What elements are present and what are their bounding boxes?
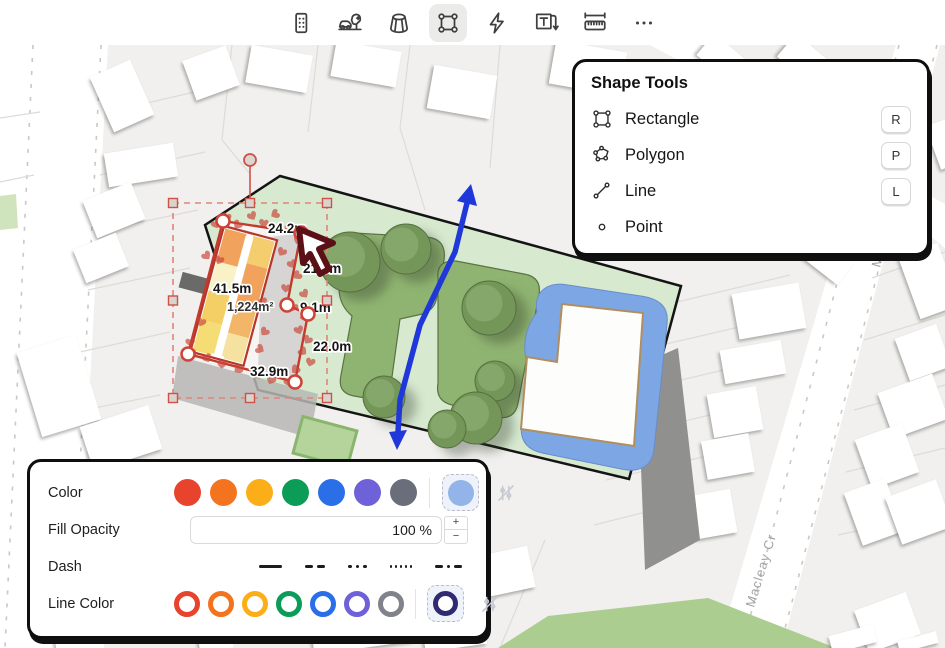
line-color-row: Line Color bbox=[48, 585, 468, 622]
area-label: 1,224m² bbox=[227, 300, 274, 314]
shortcut-key: R bbox=[881, 106, 911, 133]
dash-label: Dash bbox=[48, 559, 156, 575]
car-tree-tool-button[interactable] bbox=[331, 4, 369, 42]
measurement-bottom: 32.9m bbox=[250, 364, 288, 379]
line-color-swatch[interactable] bbox=[310, 591, 336, 617]
custom-color-disabled-icon bbox=[496, 483, 516, 503]
color-row: Color bbox=[48, 474, 468, 511]
line-color-swatch[interactable] bbox=[208, 591, 234, 617]
building-icon bbox=[288, 10, 314, 36]
menu-item-polygon[interactable]: Polygon P bbox=[589, 137, 913, 173]
swatch-divider bbox=[415, 589, 416, 619]
line-color-label: Line Color bbox=[48, 596, 156, 612]
color-swatch[interactable] bbox=[282, 479, 309, 506]
lightning-tool-button[interactable] bbox=[478, 4, 516, 42]
fill-opacity-row: Fill Opacity + − bbox=[48, 511, 468, 548]
more-tools-button[interactable] bbox=[625, 4, 663, 42]
shape-tools-panel: Shape Tools Rectangle R Polygon P Line L… bbox=[572, 59, 930, 256]
text-annotation-icon bbox=[533, 9, 559, 36]
color-swatch[interactable] bbox=[210, 479, 237, 506]
measurement-left: 41.5m bbox=[213, 281, 251, 296]
measurement-right: 22.0m bbox=[313, 339, 351, 354]
rotation-handle[interactable] bbox=[244, 154, 256, 166]
more-icon bbox=[631, 10, 657, 36]
line-color-swatch[interactable] bbox=[378, 591, 404, 617]
opacity-stepper: + − bbox=[444, 516, 468, 544]
top-toolbar bbox=[0, 0, 945, 45]
line-color-swatch[interactable] bbox=[174, 591, 200, 617]
line-color-swatch[interactable] bbox=[242, 591, 268, 617]
car-tree-icon bbox=[337, 9, 363, 36]
fill-opacity-label: Fill Opacity bbox=[48, 522, 156, 538]
menu-item-rectangle[interactable]: Rectangle R bbox=[589, 101, 913, 137]
line-color-swatch[interactable] bbox=[344, 591, 370, 617]
rectangle-select-icon bbox=[435, 10, 461, 36]
opacity-increase-button[interactable]: + bbox=[444, 516, 468, 530]
opacity-decrease-button[interactable]: − bbox=[444, 529, 468, 544]
shortcut-key: L bbox=[881, 178, 911, 205]
rectangle-select-tool-button[interactable] bbox=[429, 4, 467, 42]
selected-color-swatch[interactable] bbox=[442, 474, 479, 511]
style-panel: Color Fill Opacity + − bbox=[27, 459, 489, 639]
text-annotation-tool-button[interactable] bbox=[527, 4, 565, 42]
color-swatch[interactable] bbox=[390, 479, 417, 506]
color-swatch[interactable] bbox=[246, 479, 273, 506]
line-icon bbox=[591, 180, 613, 202]
point-icon bbox=[591, 216, 613, 238]
menu-item-label: Rectangle bbox=[625, 110, 869, 129]
color-swatch[interactable] bbox=[354, 479, 381, 506]
menu-item-point[interactable]: Point bbox=[589, 209, 913, 245]
dash-option-fine-dot[interactable] bbox=[390, 560, 413, 574]
prism-icon bbox=[386, 10, 412, 36]
shape-tools-title: Shape Tools bbox=[589, 72, 913, 101]
color-swatch[interactable] bbox=[174, 479, 201, 506]
color-swatch[interactable] bbox=[318, 479, 345, 506]
rectangle-icon bbox=[591, 108, 613, 130]
selected-line-color-swatch[interactable] bbox=[427, 585, 464, 622]
menu-item-label: Point bbox=[625, 218, 869, 237]
measure-icon bbox=[582, 9, 608, 36]
dash-option-dash[interactable] bbox=[305, 560, 325, 574]
building-tool-button[interactable] bbox=[282, 4, 320, 42]
prism-tool-button[interactable] bbox=[380, 4, 418, 42]
app-window: Macleay Cr Macleay Cr bbox=[0, 0, 945, 648]
polygon-icon bbox=[591, 144, 613, 166]
dash-option-dot[interactable] bbox=[348, 560, 367, 574]
dash-option-dash-dot[interactable] bbox=[435, 560, 462, 574]
swatch-divider bbox=[429, 478, 430, 508]
menu-item-line[interactable]: Line L bbox=[589, 173, 913, 209]
custom-line-color-disabled-icon bbox=[480, 594, 500, 614]
fill-opacity-input[interactable] bbox=[190, 516, 442, 544]
shortcut-key: P bbox=[881, 142, 911, 169]
menu-item-label: Line bbox=[625, 182, 869, 201]
dash-row: Dash bbox=[48, 548, 468, 585]
dash-option-solid[interactable] bbox=[259, 560, 282, 574]
color-label: Color bbox=[48, 485, 156, 501]
line-color-swatch[interactable] bbox=[276, 591, 302, 617]
lightning-icon bbox=[484, 10, 510, 36]
menu-item-label: Polygon bbox=[625, 146, 869, 165]
measure-tool-button[interactable] bbox=[576, 4, 614, 42]
